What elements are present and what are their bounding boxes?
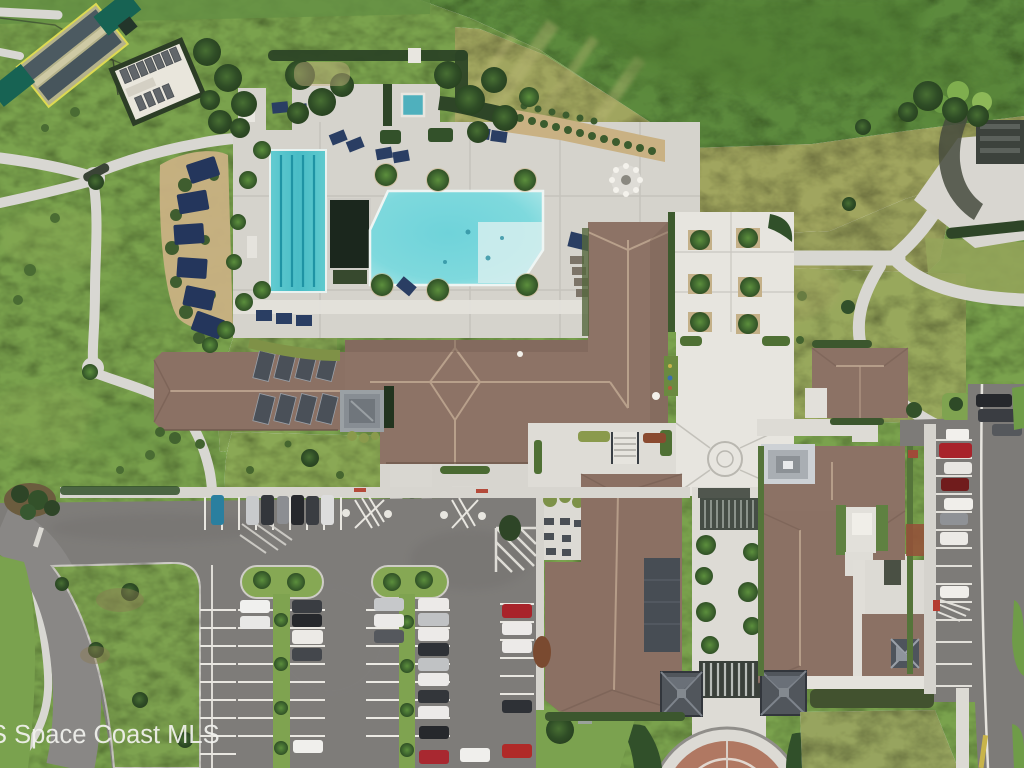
svg-text:S Space Coast MLS: S Space Coast MLS [0,721,220,749]
